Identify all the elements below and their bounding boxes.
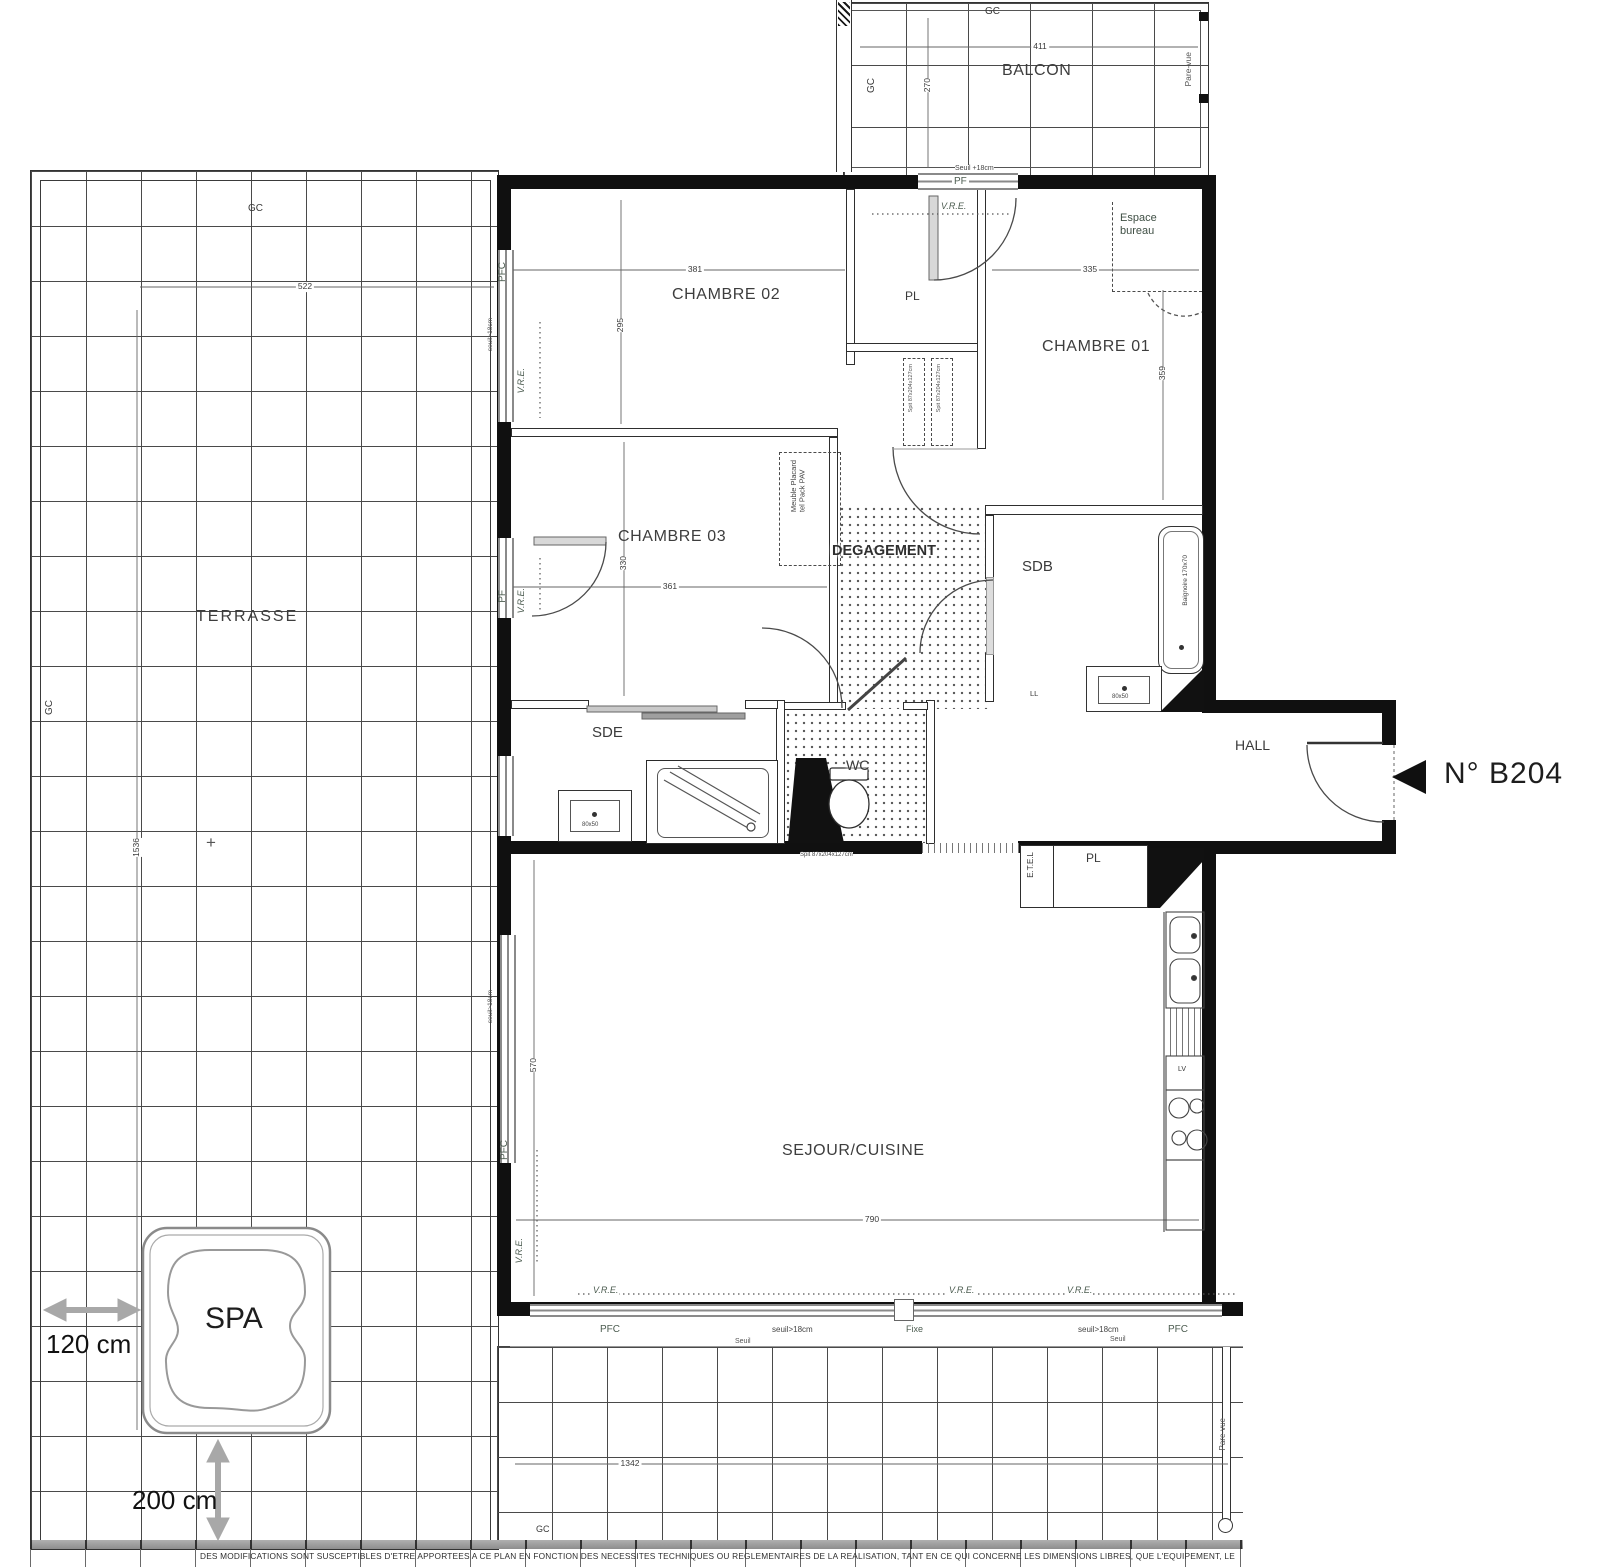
dim-ch2-h: 295 — [614, 318, 628, 332]
espace-bureau-line1: Espace — [1120, 212, 1157, 225]
survey-cross: + — [206, 833, 216, 853]
ll-label: LL — [1030, 690, 1038, 699]
dim-sejour-w: 790 — [863, 1215, 881, 1225]
espace-bureau-line2: bureau — [1120, 225, 1157, 238]
vre-label-bottom-a: V.R.E. — [592, 1285, 619, 1295]
dim-terrasse-w: 522 — [296, 282, 314, 292]
dim-sejour-h: 570 — [527, 1058, 541, 1072]
ch03-door-leaf — [534, 537, 606, 545]
degagement-door-arc — [762, 628, 842, 708]
seuil-label-bottom-b: Seuil — [1110, 1336, 1126, 1344]
room-label-degagement: DEGAGEMENT — [832, 543, 936, 560]
dim-ch1-w: 335 — [1081, 265, 1099, 275]
fixe-label-bottom: Fixe — [906, 1324, 923, 1334]
etel-label: E.T.E.L — [1026, 852, 1035, 878]
pf-label-left: PF — [497, 590, 509, 603]
meuble-placard-label: Meuble Placard tel Pack PAV — [790, 460, 807, 512]
vre-label-balcony: V.R.E. — [940, 201, 967, 211]
room-label-balcon: BALCON — [1002, 62, 1071, 80]
vre-label-bottom-b: V.R.E. — [948, 1285, 975, 1295]
room-label-spa: SPA — [205, 1302, 263, 1337]
vre-label-left-bottom: V.R.E. — [514, 1238, 524, 1263]
pocket-panel-text-b: Spit 87x204x127cm — [936, 364, 942, 412]
pfc-label-bottom-b: PFC — [1168, 1324, 1188, 1336]
meuble-placard-line2: tel Pack PAV — [799, 460, 808, 512]
dim-balcon-h: 270 — [921, 78, 935, 92]
balcony-door-leaf — [929, 196, 938, 280]
room-label-hall: HALL — [1235, 737, 1270, 753]
ch03-door-arc — [532, 542, 606, 616]
vre-dotted-lines — [537, 214, 1238, 1294]
room-label-terrasse: TERRASSE — [196, 608, 298, 626]
vre-label-left-mid: V.R.E. — [516, 588, 526, 613]
parevue-label-bottom: Pare-vue — [1218, 1418, 1227, 1450]
bathtub-label: Baignoire 170x70 — [1182, 555, 1189, 606]
lv-label: LV — [1178, 1066, 1186, 1074]
seuil18-label-balcony: Seuil +18cm — [955, 165, 994, 173]
pfc-label-left-top: PFC — [497, 262, 509, 282]
dim-balcon-w: 411 — [1031, 42, 1049, 52]
room-label-wc: WC — [846, 757, 869, 773]
room-label-sejour: SEJOUR/CUISINE — [782, 1142, 925, 1160]
toilet — [829, 768, 869, 828]
door-leaves — [534, 196, 938, 719]
seuil18-label-bottom-b: seuil>18cm — [1078, 1325, 1119, 1334]
spa-width-label: 120 cm — [46, 1330, 131, 1360]
pocket-panel-text-a: Spit 87x204x127cm — [908, 364, 914, 412]
door-arcs — [532, 198, 1394, 822]
plan-disclaimer: DES MODIFICATIONS SONT SUSCEPTIBLES D'ET… — [200, 1552, 1600, 1562]
parevue-label-balcony: Pare-vue — [1184, 52, 1194, 87]
seuil18-label-bottom-a: seuil>18cm — [772, 1325, 813, 1334]
wc-door-leaf — [848, 658, 906, 710]
unit-number: N° B204 — [1444, 757, 1563, 792]
entry-door-arc — [1307, 745, 1384, 822]
dim-ch3-h: 330 — [617, 556, 631, 570]
vre-label-bottom-c: V.R.E. — [1066, 1285, 1093, 1295]
pfc-label-left-bottom: PFC — [499, 1140, 511, 1160]
dim-ch1-h: 359 — [1156, 366, 1170, 380]
dim-ch3-w: 361 — [661, 582, 679, 592]
room-label-pl-1: PL — [905, 290, 920, 304]
ch01-door-arc — [893, 447, 980, 534]
dim-terrasse-h: 1536 — [130, 838, 144, 857]
gc-terrasse-left: GC — [44, 700, 56, 715]
seuil18-label-left-b: seuil>18cm — [487, 990, 494, 1023]
room-label-sde: SDE — [592, 724, 623, 741]
room-label-chambre01: CHAMBRE 01 — [1042, 338, 1150, 356]
sdb-sink-size: 80x50 — [1112, 694, 1128, 701]
floorplan-canvas: BALCON TERRASSE CHAMBRE 02 CHAMBRE 01 CH… — [0, 0, 1600, 1567]
spit-label-wc: Spit 87x204x127cm — [800, 852, 853, 859]
pf-label-balcony: PF — [952, 176, 969, 188]
sdb-door-arc — [920, 580, 993, 653]
sde-sliding-rail-b — [642, 713, 745, 719]
seuil-label-bottom-a: Seuil — [735, 1338, 751, 1346]
sde-sliding-rail-a — [587, 706, 717, 712]
seuil18-label-left-a: seuil>18cm — [487, 318, 494, 351]
shower-jets — [664, 766, 760, 831]
dim-terrasse-bottom: 1342 — [619, 1459, 642, 1469]
espace-bureau-label: Espace bureau — [1120, 212, 1157, 237]
spa-height-label: 200 cm — [132, 1486, 217, 1516]
gc-balcony-top: GC — [985, 6, 1000, 18]
room-label-sdb: SDB — [1022, 558, 1053, 575]
gc-terrasse-top: GC — [248, 203, 263, 215]
room-label-pl-2: PL — [1086, 852, 1101, 866]
pfc-label-bottom-a: PFC — [600, 1324, 620, 1336]
room-label-chambre03: CHAMBRE 03 — [618, 528, 726, 546]
room-label-chambre02: CHAMBRE 02 — [672, 286, 780, 304]
sde-sink-size: 80x50 — [582, 822, 598, 829]
vre-label-left-top: V.R.E. — [516, 368, 526, 393]
bureau-dashed-arc — [1148, 293, 1202, 316]
dim-ch2-w: 381 — [686, 265, 704, 275]
gc-terrasse-bottom: GC — [536, 1524, 550, 1534]
gc-balcony-left: GC — [866, 78, 878, 93]
